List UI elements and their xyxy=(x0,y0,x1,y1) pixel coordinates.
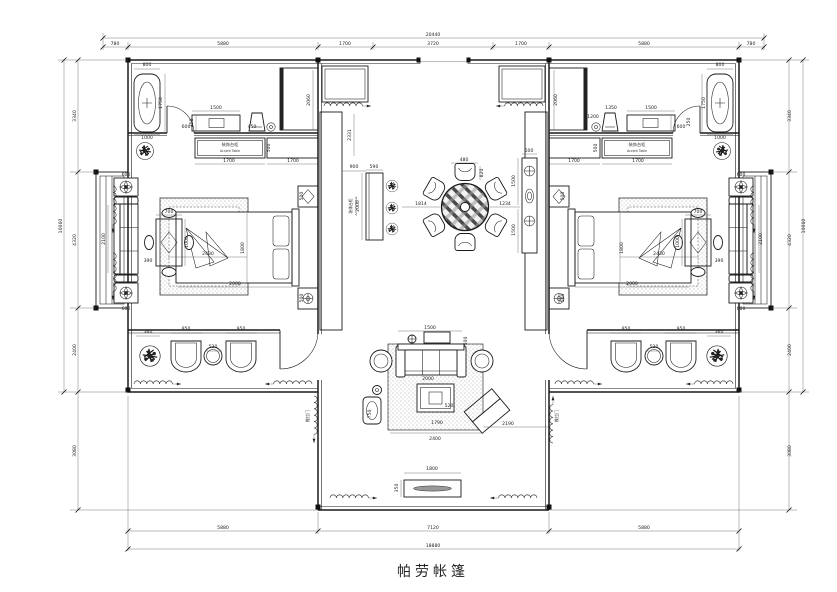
accent-console-left xyxy=(366,173,398,240)
dimension-text: 950 xyxy=(237,326,246,332)
dimension-text: 500 xyxy=(266,144,272,153)
dimension-text: 600 xyxy=(122,306,131,312)
dimension-text: 500 xyxy=(525,148,534,154)
dimension-text: 600 xyxy=(737,306,746,312)
dimension-text: 1350 xyxy=(605,105,617,111)
dimension-text: 1500 xyxy=(511,224,517,236)
dimension-text: 750 xyxy=(367,410,373,419)
dimension-text: 1700 xyxy=(515,41,527,47)
dimension-text: 360 xyxy=(715,329,724,335)
dimension-text: 10060 xyxy=(801,219,807,234)
dimension-text: 700 xyxy=(165,209,174,215)
dimension-text: 1500 xyxy=(645,105,657,111)
dimension-text: 800 xyxy=(716,62,725,68)
furniture-label: Accent Table xyxy=(220,149,240,153)
entry-closet-left xyxy=(322,66,371,107)
dimension-text: 500 xyxy=(299,192,305,201)
dimension-text: 520 xyxy=(209,344,218,350)
floor-plan-canvas: 7805880170037201700588078020440588071205… xyxy=(0,0,837,592)
dimension-text: 5880 xyxy=(217,525,229,531)
dimension-text: 2100 xyxy=(101,233,107,245)
dimension-text: 2000 xyxy=(626,281,638,287)
left-wing xyxy=(94,58,319,393)
dimension-text: 1234 xyxy=(499,201,511,207)
dimension-text: 5880 xyxy=(217,41,229,47)
dimension-text: 2430 xyxy=(202,251,214,257)
dimension-text: 1814 xyxy=(415,201,427,207)
dimension-text: 700 xyxy=(694,209,703,215)
furniture-label: 推拉门 xyxy=(304,410,310,422)
dimension-text: 1200 xyxy=(587,114,599,120)
dimension-text: 600 xyxy=(677,124,686,130)
dimension-text: 500 xyxy=(593,144,599,153)
accent-console-right xyxy=(522,158,537,253)
dimension-text: 5880 xyxy=(638,41,650,47)
furniture-label: 装饰台柜 xyxy=(629,141,646,148)
dimension-text: 450 xyxy=(248,124,257,130)
floor-plan-drawing: 7805880170037201700588078020440588071205… xyxy=(0,0,837,592)
dimension-text: 780 xyxy=(111,41,120,47)
dimension-text: 1750 xyxy=(158,97,164,109)
dimension-text: 350 xyxy=(189,119,195,128)
dimension-text: 1800 xyxy=(619,242,625,254)
entry-closet-right xyxy=(496,66,545,107)
dimension-text: 900 xyxy=(350,164,359,170)
furniture-label: 推拉门 xyxy=(553,410,559,422)
dimension-text: 1800 xyxy=(426,466,438,472)
dimension-text: 520 xyxy=(445,403,454,409)
center-section xyxy=(313,58,555,511)
dimension-text: 1700 xyxy=(568,158,580,164)
dimension-text: 4320 xyxy=(787,234,793,246)
furniture-label: Accent Table xyxy=(354,196,358,215)
dimension-text: 20440 xyxy=(426,32,441,38)
furniture-label: 装饰台柜 xyxy=(348,198,353,213)
dimension-text: 600 xyxy=(737,172,746,178)
dimension-text: 2400 xyxy=(429,436,441,442)
dimension-text: 18880 xyxy=(426,543,441,549)
dimension-text: 800 xyxy=(143,62,152,68)
dimension-text: 1000 xyxy=(141,135,153,141)
dimension-text: 10060 xyxy=(58,219,64,234)
drawing-title: 帕劳帐篷 xyxy=(397,564,469,580)
dimension-text: 2060 xyxy=(553,94,559,106)
dimension-text: 2430 xyxy=(653,251,665,257)
dimension-text: 950 xyxy=(622,326,631,332)
dimension-text: 820 xyxy=(479,169,485,178)
dimension-text: 2100 xyxy=(758,233,764,245)
dimension-text: 1750 xyxy=(701,97,707,109)
dimension-text: 360 xyxy=(144,329,153,335)
dimension-text: 500 xyxy=(463,337,469,346)
furniture-label: Accent Table xyxy=(627,149,647,153)
dimension-text: 2400 xyxy=(72,344,78,356)
dimension-text: 1700 xyxy=(632,158,644,164)
dimension-text: 500 xyxy=(299,294,305,303)
dimension-text: 500 xyxy=(560,294,566,303)
living-set xyxy=(363,332,510,433)
dimension-text: 3080 xyxy=(72,445,78,457)
dimension-text: 390 xyxy=(144,258,153,264)
dimension-text: 1700 xyxy=(339,41,351,47)
dimension-text: 1500 xyxy=(210,105,222,111)
dimension-text: 3340 xyxy=(72,110,78,122)
dimension-text: 1000 xyxy=(675,236,681,248)
right-wing xyxy=(549,58,774,393)
dimension-text: 4320 xyxy=(72,234,78,246)
dimension-text: 1790 xyxy=(431,420,443,426)
dimension-text: 2190 xyxy=(502,421,514,427)
dimension-text: 3720 xyxy=(427,41,439,47)
dimension-text: 500 xyxy=(560,192,566,201)
dimension-text: 390 xyxy=(715,258,724,264)
dimension-text: 2000 xyxy=(422,376,434,382)
dimension-text: 350 xyxy=(394,484,400,493)
dimension-text: 1700 xyxy=(287,158,299,164)
dimension-text: 1500 xyxy=(424,325,436,331)
wardrobe-left xyxy=(320,112,342,330)
dimension-text: 2400 xyxy=(787,344,793,356)
dimension-text: 600 xyxy=(122,172,131,178)
dimension-text: 3340 xyxy=(787,110,793,122)
dimension-text: 1500 xyxy=(511,175,517,187)
dimension-text: 1700 xyxy=(223,158,235,164)
dimension-text: 2000 xyxy=(229,281,241,287)
dimension-text: 250 xyxy=(686,118,692,127)
dimension-text: 1000 xyxy=(714,135,726,141)
dimension-text: 950 xyxy=(182,326,191,332)
tv-console xyxy=(404,480,461,497)
dimension-text: 2060 xyxy=(306,94,312,106)
dimension-text: 520 xyxy=(650,344,659,350)
dimension-text: 2331 xyxy=(347,129,353,141)
dimension-text: 590 xyxy=(370,164,379,170)
dimension-text: 5880 xyxy=(638,525,650,531)
dimension-text: 480 xyxy=(460,157,469,163)
dimension-text: 780 xyxy=(747,41,756,47)
dimension-text: 7120 xyxy=(427,525,439,531)
dimension-text: 950 xyxy=(677,326,686,332)
dimension-text: 3080 xyxy=(787,445,793,457)
furniture-label: 装饰台柜 xyxy=(222,141,239,148)
dimension-text: 1000 xyxy=(184,236,190,248)
dimension-text: 1800 xyxy=(240,242,246,254)
